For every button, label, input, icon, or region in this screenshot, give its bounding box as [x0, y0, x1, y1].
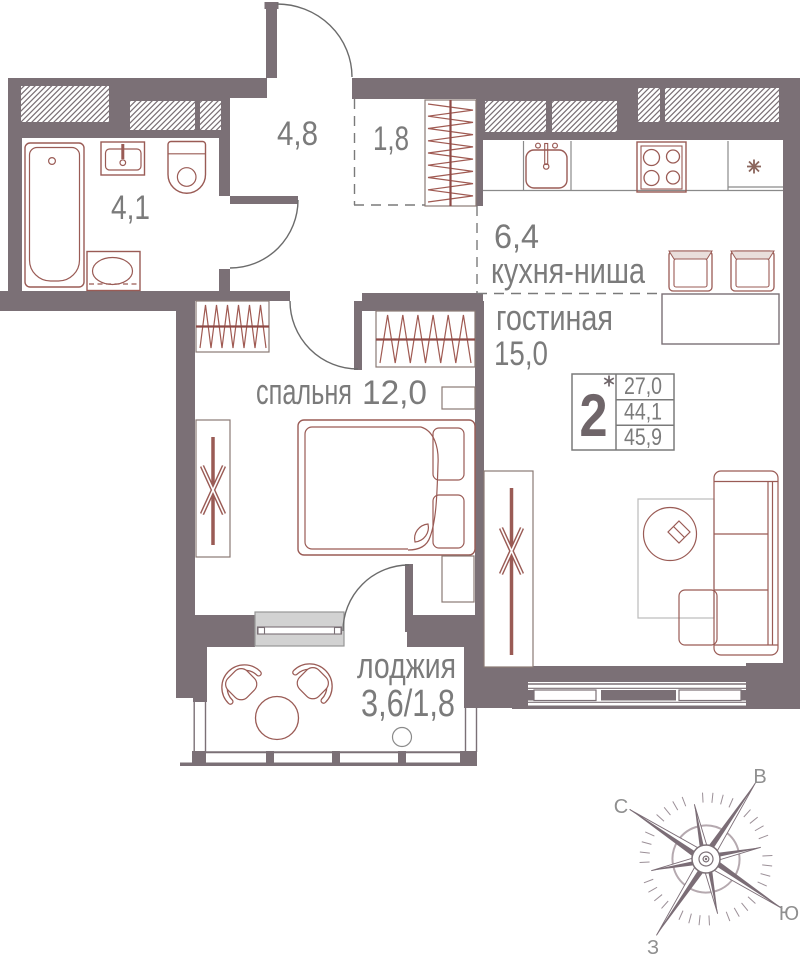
svg-text:15,0: 15,0 — [494, 335, 548, 373]
svg-text:В: В — [753, 766, 766, 788]
svg-text:3,6/1,8: 3,6/1,8 — [361, 683, 455, 725]
svg-text:гостиная: гостиная — [496, 297, 613, 338]
svg-text:лоджия: лоджия — [357, 645, 456, 686]
svg-text:2: 2 — [580, 382, 608, 449]
svg-text:З: З — [647, 937, 659, 954]
svg-text:44,1: 44,1 — [624, 399, 662, 426]
svg-text:27,0: 27,0 — [624, 373, 662, 400]
svg-text:Ю: Ю — [779, 903, 799, 925]
svg-text:4,8: 4,8 — [277, 115, 318, 153]
svg-text:1,8: 1,8 — [373, 120, 409, 158]
svg-text:кухня-ниша: кухня-ниша — [491, 250, 646, 291]
svg-text:45,9: 45,9 — [624, 424, 662, 451]
svg-text:спальня: спальня — [256, 371, 352, 412]
svg-text:12,0: 12,0 — [362, 374, 427, 412]
svg-text:С: С — [614, 796, 628, 818]
svg-text:4,1: 4,1 — [111, 189, 150, 227]
